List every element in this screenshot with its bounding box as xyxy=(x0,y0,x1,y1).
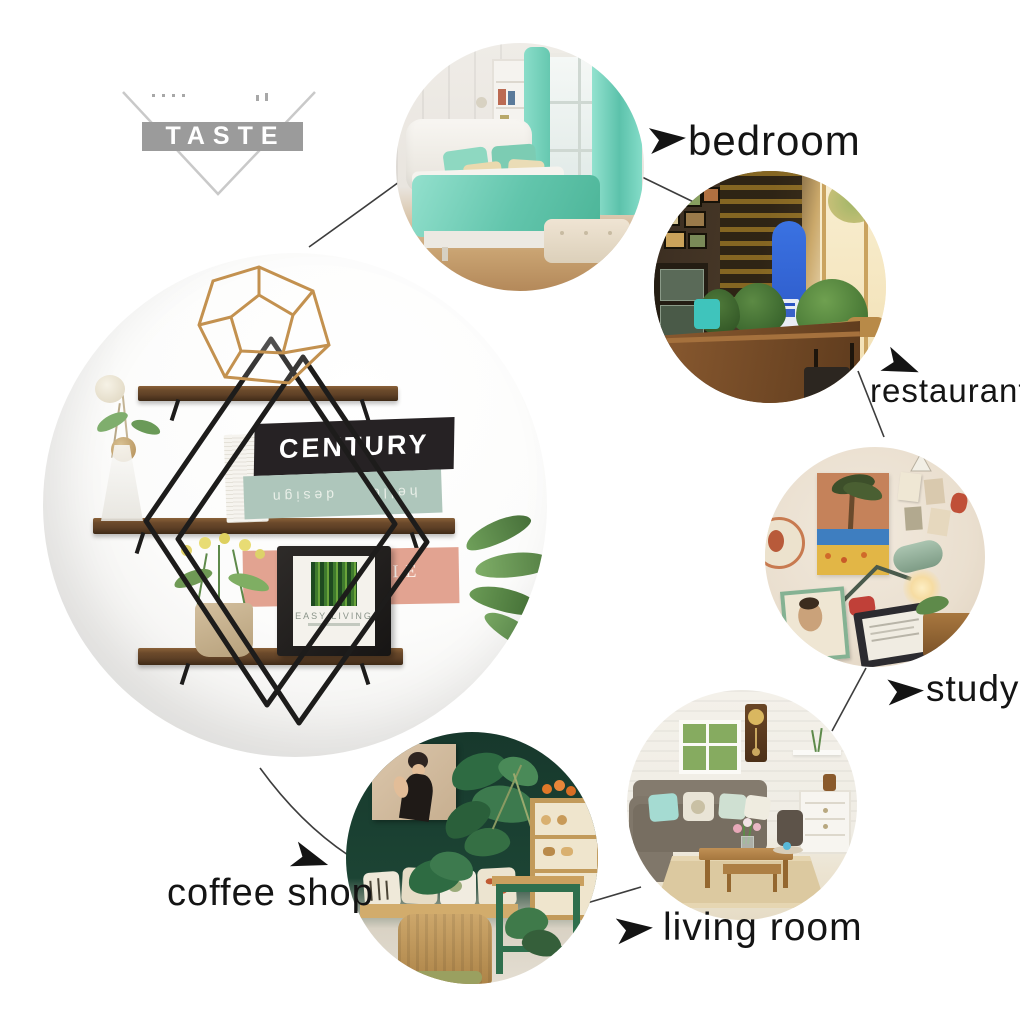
bedroom-photo-circle xyxy=(396,43,644,291)
watermark-text: TASTE xyxy=(142,122,303,151)
wall-clock xyxy=(745,704,767,762)
floral-cushion xyxy=(683,792,714,821)
desk-clutter xyxy=(923,613,977,657)
green-cushion xyxy=(718,793,747,820)
white-cushion xyxy=(744,794,772,820)
dresser xyxy=(799,790,851,854)
bedroom-label: bedroom xyxy=(688,117,861,165)
living-room-arrow-icon xyxy=(616,914,655,945)
taste-watermark: TASTE xyxy=(110,82,330,207)
lantern xyxy=(823,774,836,791)
teal-cushion xyxy=(648,793,679,822)
barrel xyxy=(777,810,803,846)
restaurant-photo-circle xyxy=(654,171,886,403)
restaurant-label: restaurant xyxy=(870,372,1020,410)
pastry-cabinet xyxy=(530,798,598,920)
wall-plate xyxy=(765,517,805,569)
product-photo-circle: CENTURY hello design NATHALIE schwer EAS… xyxy=(43,253,547,757)
teal-pot xyxy=(694,299,720,329)
table-bench xyxy=(723,864,781,874)
green-picture-frame xyxy=(780,586,850,663)
wall-lamp xyxy=(476,97,487,108)
living-room-label: living room xyxy=(663,906,863,950)
coffee-shop-label: coffee shop xyxy=(167,872,374,915)
coffee-shop-photo-circle xyxy=(346,732,598,984)
bedroom-arrow-icon xyxy=(649,124,687,154)
ottoman xyxy=(544,219,630,263)
planter-bucket xyxy=(804,367,850,403)
living-room-photo-circle xyxy=(627,690,857,920)
window xyxy=(679,720,741,774)
gallery-wall xyxy=(658,187,718,271)
brass-terrarium xyxy=(193,265,338,389)
tray xyxy=(773,846,803,854)
study-label: study xyxy=(926,668,1019,710)
product-collage: TASTE CENTURY hello design xyxy=(0,0,1020,1020)
green-table-frame xyxy=(496,884,580,892)
study-photo-circle xyxy=(765,447,985,667)
rattan-chair xyxy=(398,914,492,984)
study-arrow-icon xyxy=(887,677,924,706)
portrait-painting xyxy=(372,744,456,820)
